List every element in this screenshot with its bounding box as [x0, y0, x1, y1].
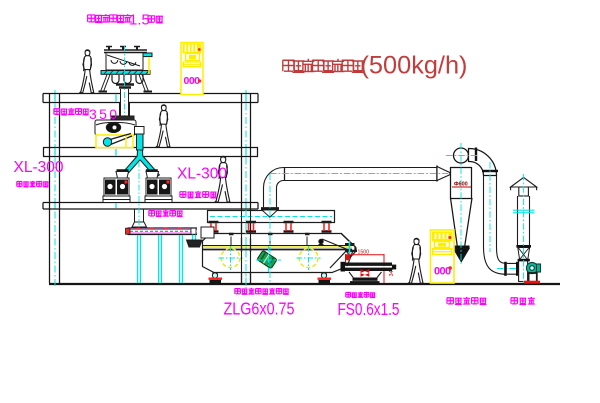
- svg-text:1500: 1500: [358, 249, 370, 255]
- svg-text:FS0.6x1.5: FS0.6x1.5: [338, 299, 400, 319]
- svg-text:1.5: 1.5: [129, 12, 150, 29]
- svg-text:Φ600: Φ600: [454, 182, 468, 188]
- svg-text:XL-300: XL-300: [177, 166, 227, 183]
- svg-text:000: 000: [434, 266, 451, 278]
- svg-text:350: 350: [89, 106, 117, 122]
- svg-text:XL-300: XL-300: [14, 159, 64, 176]
- svg-text:000: 000: [184, 75, 201, 87]
- svg-text:(500kg/h): (500kg/h): [361, 52, 468, 80]
- svg-text:ZLG6x0.75: ZLG6x0.75: [224, 299, 295, 319]
